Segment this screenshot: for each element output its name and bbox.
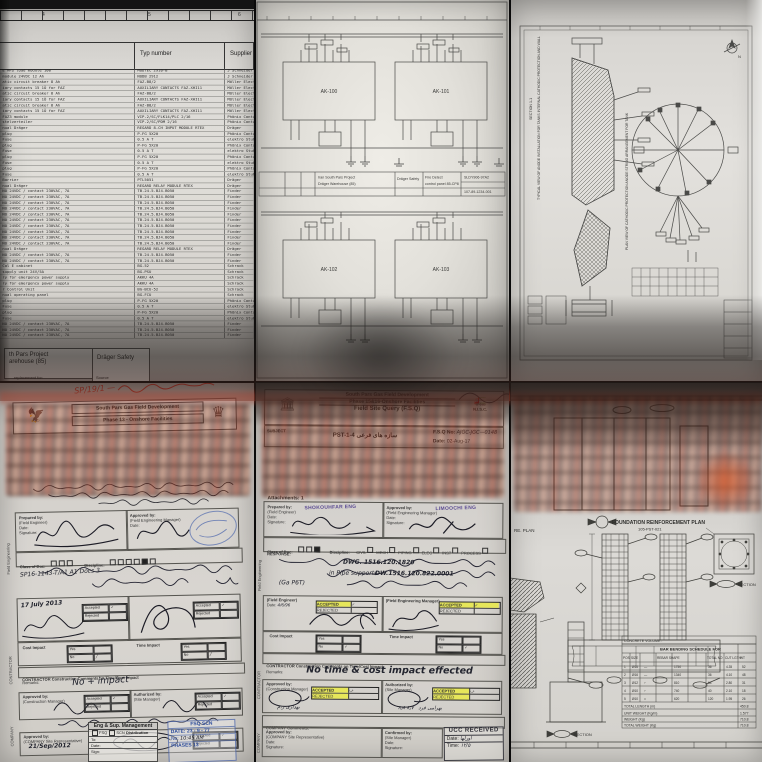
tb-title1: Fire Detect [425,176,443,180]
header-line1: South Pars Gas Field Development [73,403,203,412]
rejected-cell: Rejected [85,703,111,712]
no-cell: No [436,644,462,652]
bbs-h-pos: POS [623,656,630,660]
anode-data-table [632,268,718,296]
part-description: NO 24VDC / contact 230VAC, 7A [0,218,135,223]
part-supplier: Möller Electric [225,85,254,90]
no-tick: ✓ [342,644,360,652]
doc-class-checkbox-checked [314,546,320,552]
drawing-ruler-strip: 4 5 6 [0,10,254,21]
panel-fsq-phase1516-photo: South Pars Gas Field Development Phase 1… [255,382,509,762]
north-arrow-icon [724,40,740,53]
red-handwritten-note: SP/19/1 — [74,383,116,396]
svg-text:⌐: ⌐ [644,689,646,693]
col-header-supplier: Supplier [225,43,254,69]
pedestal-columns [575,534,713,640]
fe-decision-signature [304,604,384,631]
rejected-empty [109,612,127,620]
discipline-option: ELEC [422,550,432,555]
prepared-by-block: Prepared by: (Field Engineer) Date: Sign… [15,510,129,552]
concrete-volume-label: CONCRETE VOLUME : [624,639,662,643]
part-supplier: Finder [225,206,254,211]
svg-text:64: 64 [708,681,712,685]
part-supplier: Phönix Contact [225,131,254,136]
part-description: NO 24VDC / contact 230VAC, 7A [0,258,135,263]
part-description: r Control Unit [0,287,135,292]
part-supplier: J Schneider [225,74,254,79]
part-type-number: VIP-2/SC/FLK14/PLC 2/16 [135,114,225,119]
fsq1516-header: South Pars Gas Field Development Phase 1… [264,389,504,427]
block-label: AK-102 [321,267,338,273]
part-supplier: Finder [225,195,254,200]
part-description: NO 24VDC / contact 230VAC, 7A [0,212,135,217]
parts-table-header: Typ number Supplier [0,42,254,70]
part-type-number: MODTEC 2910-B [135,68,225,73]
part-description: supply unit 24V/5A [0,269,135,274]
side-label-field-engineering: Field Engineering [257,560,262,591]
part-type-number: PTL5051 [135,177,225,182]
side-label-company: COMPANY [9,726,14,746]
part-type-number: AKKU 4A [135,281,225,286]
fsq-checkbox [92,730,98,736]
rejected-cell: Rejected [196,701,222,710]
response-pipe-supports: in Pipe supports [329,570,377,577]
svg-text:48: 48 [742,673,746,677]
parts-table-body: E MPS load module 100 MODTEC 2910-B J Sc… [0,68,254,339]
discipline-option: PROCESS [461,551,481,556]
discipline-checkbox [433,547,439,553]
header-signature-overlay [455,388,509,406]
part-type-number: TB.24.5.BJ4.B050 [135,258,225,263]
yes-empty [343,636,361,644]
manager-signature [133,516,194,545]
cm-farsi-signature: بهداری ر،م [277,704,300,710]
svg-text:810: 810 [674,681,680,685]
date-label: Date: [267,602,277,607]
svg-text:52: 52 [742,665,746,669]
part-description: FAZ3 module [0,114,135,119]
part-type-number: 0.5 A T [135,316,225,321]
label-typical-view: TYPICAL VIEW OF ANODE INSTALLATION FOR T… [537,36,541,200]
bbs-rows: 1Ø16—1750364.3552 2Ø16—1340364.1048 3Ø12… [624,665,746,701]
page-edge-highlight [746,0,762,360]
rejected-empty [469,695,498,700]
bbs-row: 2Ø16—1340364.1048 [624,673,746,677]
tb-drawing-no: SLDY906-97A2 [464,176,489,180]
part-type-number: TB.24.5.BJ4.B050 [135,229,225,234]
remarks-handwriting: No + impact [72,675,129,688]
part-description: E MPS load module 100 [0,68,135,73]
part-type-number: BG-BCU-52 [135,287,225,292]
discipline-option: PIPING [398,550,412,555]
part-type-number: AKKU 4A [135,275,225,280]
part-description: module 24VDC 12 Ah [0,74,135,79]
stamp-time-handwriting: 10:45 AM [180,735,204,742]
discipline-checkbox [413,547,419,553]
bbs-footer-2-val: 710.8 [740,718,749,722]
side-label-contractor: CONTRACTOR [256,671,261,699]
part-description: ry for emergency power supply [0,275,135,280]
part-supplier: Finder [225,333,254,338]
part-description: atic circuit breaker 8 Ah [0,103,135,108]
impact-row: Cost Impact Yes No╱ Time Impact Yes No╱ [17,638,241,667]
received-date-scribble: اورلها [460,736,472,742]
cost-impact-label: Cost Impact [270,633,293,638]
date-value: 02-Aug-17 [447,438,470,444]
signature-label: Signature: [382,745,442,750]
svg-text:2: 2 [624,673,626,677]
time-impact-label: Time Impact [390,634,413,639]
part-supplier: Möller Electric [225,103,254,108]
cathodic-drawing: TYPICAL VIEW OF ANODE INSTALLATION FOR T… [510,0,762,381]
vendor-name: Dräger Safety [97,355,149,362]
part-description: Fuse [0,137,135,142]
part-type-number: FAZ-B8/2 [135,91,225,96]
response-note: (Ga P6T) [279,579,305,586]
no-cell: No [182,651,208,660]
part-description: NO 24VDC / contact 230VAC, 7A [0,235,135,240]
dist-label: Distribution [126,730,148,735]
part-type-number: REGARD 8-CH INPUT MODULE RTEX [135,126,225,131]
prepared-signature [288,510,378,535]
contractor-comments-header: CONTRACTOR Construction Comments on Time… [262,653,505,666]
header-text-block: South Pars Gas Field Development Phase 1… [319,392,455,414]
project-name: th Pars Project [9,352,97,359]
plan-label: RE. PLAN [514,528,535,533]
part-supplier: Schrack [225,292,254,297]
part-type-number: TB.24.5.BJ4.B050 [135,321,225,326]
panel-parts-list-photo: 4 5 6 Typ number Supplier E MPS load mod… [0,0,254,381]
part-description: plug [0,298,135,303]
svg-text:4: 4 [624,689,626,693]
part-description: nual Dräger [0,126,135,131]
svg-text:—: — [644,665,648,669]
accepted-cell-highlighted: ACCEPTED [440,602,474,607]
svg-text:1750: 1750 [674,665,681,669]
yes-cell: Yes [436,636,462,644]
source-label: Source [96,375,109,380]
confirmed-block: Confirmed by: (Site Manager) Date: Signa… [381,728,443,758]
part-supplier: elektro Stuhr [225,172,254,177]
part-type-number: P-FG 5X20 [135,131,225,136]
part-type-number: P-FG 5X20 [135,143,225,148]
part-type-number: TB.24.5.BJ4.B050 [135,241,225,246]
part-type-number: NODB 2912 [135,74,225,79]
cm-accept-table: Accepted✓ Rejected [84,694,130,713]
part-description: NO 24VDC / contact 230VAC, 7A [0,333,135,338]
accepted-tick: ⤻ [348,688,377,693]
time-impact-table: Yes No╱ [180,642,226,661]
header-phase-box: Phase 13 - Onshore Facilities [72,413,204,426]
ground-symbols [346,156,504,166]
cm-accept-table: ACCEPTED⤻ REJECTED [311,687,379,700]
header-title-box: South Pars Gas Field Development [71,401,203,414]
section-label-right: SECTION [738,582,756,587]
doc-class-checkbox [298,546,304,552]
part-supplier: Dräger [225,246,254,251]
rebar-drawing: FOUNDATION REINFORCEMENT PLAN 105-PST-02… [510,382,762,762]
side-label-company: COMPANY [256,733,261,753]
accepted-tick: ✓ [474,603,499,608]
cost-impact-table: Yes No╱ [67,644,113,663]
part-type-number: TB.24.5.BJ4.B050 [135,223,225,228]
response-farsi-handwriting [18,562,239,597]
relay-block-ak102 [283,212,375,334]
svg-text:4.35: 4.35 [726,665,732,669]
part-supplier: Finder [225,258,254,263]
part-supplier: Schrack [225,287,254,292]
subject-value: PST-1-4 سازه های فرعی [305,432,425,440]
panel-rebar-drawing-photo: FOUNDATION REINFORCEMENT PLAN 105-PST-02… [510,382,762,762]
part-type-number: 0.5 A T [135,172,225,177]
right-logo-text: N.I.S.C. [463,407,497,412]
part-description: nual Dräger [0,183,135,188]
bbs-footer-0: TOTAL LENGTH (m) [624,705,655,709]
response-dwg2: DW.1516.120.822.0001 [375,570,454,578]
discipline-checkbox [367,547,373,553]
fem-decision: (Field Engineering Manager) ACCEPTED✓ RE… [382,596,503,633]
side-label-field-engineering: Field Engineering [5,543,11,574]
part-type-number: FAZ-B8/2 [135,80,225,85]
part-supplier: J Schneider [225,68,254,73]
part-supplier: Schrack [225,269,254,274]
received-stamp-text: UCC RECEIVED [445,727,503,735]
remarks-label: Remarks: [22,680,39,685]
bbs-footer-0-val: 450.8 [740,705,749,709]
part-supplier: elektro Stuhr [225,149,254,154]
subject-row: SUBJECT PST-1-4 سازه های فرعی F.S.Q No: … [264,425,504,449]
red-handwriting-scribble [116,382,226,396]
dist-fsq-label: FSQ [99,730,107,735]
discipline-label: Discipline: [330,550,350,555]
part-description: nual Dräger [0,246,135,251]
company-approved-block: Approved by: (COMPANY Site Representativ… [262,727,383,758]
sm-farsi-signature: بهرامی فرد ۸٫۷ ۸٫۸ [398,705,442,711]
part-description: stelverteiler [0,120,135,125]
svg-text:5: 5 [624,697,626,701]
field-engineer-signature [30,515,126,549]
bbs-footer-1-val: 1.577 [740,712,749,716]
part-description: atic circuit breaker 8 Ah [0,80,135,85]
drawing-title: FOUNDATION REINFORCEMENT PLAN [612,520,705,526]
svg-text:□: □ [644,697,646,701]
bbs-row: 4Ø10⌐740402.1018 [624,689,746,693]
part-description: nual operating panel [0,292,135,297]
received-date-label: Date: [447,736,459,742]
doc-class-checkbox [306,546,312,552]
subject-label: SUBJECT [267,428,286,433]
part-supplier: Finder [225,235,254,240]
part-supplier: Finder [225,327,254,332]
svg-text:3: 3 [624,681,626,685]
part-type-number: P-FG 5X20 [135,154,225,159]
panel-cathodic-drawing-photo: TYPICAL VIEW OF ANODE INSTALLATION FOR T… [510,0,762,381]
label-section: SECTION 1-1 [529,98,533,120]
part-supplier: elektro Stuhr [225,160,254,165]
part-type-number: AUXILIARY CONTACTS FAZ-XHI11 [135,108,225,113]
part-supplier: Phönix Contact [225,154,254,159]
part-description: NO 24VDC / contact 230VAC, 7A [0,200,135,205]
part-description: Fuse [0,304,135,309]
svg-text:740: 740 [674,689,680,693]
bbs-row: 1Ø16—1750364.3552 [624,665,746,669]
part-type-number: TB.24.5.BJ4.B050 [135,333,225,338]
bbs-row: 3Ø12⌐810642.8031 [624,681,746,685]
part-description: plug [0,310,135,315]
part-type-number: BG-52 [135,264,225,269]
rejected-cell: Rejected [83,612,109,621]
photo-edge-shadow [0,0,10,381]
fsq13-form: SP/19/1 — South Pars Gas Field Developme… [0,382,254,762]
bbs-row: 5Ø10□6201201.9526 [624,697,746,701]
svg-text:18: 18 [742,689,746,693]
svg-text:2.10: 2.10 [726,689,732,693]
small-column-detail [546,622,606,738]
crown-logo-icon: ♛ [211,403,225,421]
part-type-number: AUXILIARY CONTACTS FAZ-XHI11 [135,85,225,90]
no-tick: ╱ [208,651,226,659]
impact-row: Cost Impact Yes No✓ Time Impact Yes No✓ [262,631,502,655]
tb-project2: Dräger Warehouse (85) [318,182,356,186]
part-type-number: TB.24.5.BJ4.B050 [135,235,225,240]
rejected-cell: Rejected [194,610,220,619]
part-type-number: TB.24.5.BJ4.B050 [135,195,225,200]
north-label: N [738,54,741,59]
part-supplier: Finder [225,200,254,205]
part-type-number: AUXILIARY CONTACTS FAZ-XHI11 [135,97,225,102]
part-supplier: Finder [225,218,254,223]
part-supplier: Schrack [225,275,254,280]
svg-text:36: 36 [708,665,712,669]
header-line3: Field Site Query (F.S.Q) [319,405,455,414]
bbs-h-no: TOTAL NO [707,656,723,660]
svg-text:120: 120 [708,697,714,701]
cm-approval: Approved by: (Construction Manager) ACCE… [262,679,383,714]
part-supplier: Schrack [225,281,254,286]
dist-title: Eng & Sup. Management [89,723,157,730]
svg-text:40: 40 [708,689,712,693]
part-type-number: P-FG 5X20 [135,310,225,315]
dist-scn-label: SCN [116,730,124,735]
part-type-number: REGARD RELAY MODULE RTEX [135,183,225,188]
svg-text:⌐: ⌐ [644,681,646,685]
bbs-footer-3-val: 710.8 [740,724,749,728]
date-label: Date: [433,438,446,444]
part-description: NO 24VDC / contact 230VAC, 7A [0,206,135,211]
svg-text:—: — [644,673,648,677]
relay-block-ak100 [283,34,375,156]
document-photo-collage: 4 5 6 Typ number Supplier E MPS load mod… [0,0,762,762]
replacement-label: replacement for: [14,375,43,380]
discipline-checkbox [482,547,488,553]
part-description: plug [0,131,135,136]
received-stamp: UCC RECEIVED Date: اورلها Time: ۱۲/۵ [444,726,504,761]
block-label: AK-101 [433,89,450,95]
fe-accept-table: Accepted✓ Rejected [82,603,128,622]
rejected-empty [474,609,499,614]
svg-text:2.80: 2.80 [726,681,732,685]
label-plan-view: PLAN VIEW OF CATHODIC PROTECTION ANODE S… [625,112,629,250]
part-description: Fuse [0,149,135,154]
part-supplier: Phönix Contact [225,143,254,148]
rejected-cell: REJECTED [440,608,474,613]
part-type-number: TB.24.5.BJ4.B050 [135,200,225,205]
part-type-number: TB.24.5.BJ4.B050 [135,212,225,217]
drawing-title-no: 105-PST-021 [638,527,662,532]
fsq-no-label: F.S.Q No: [433,429,455,435]
part-type-number: TB.24.5.BJ4.B050 [135,252,225,257]
anode-string-section [566,210,612,316]
no-cell: No [316,644,342,652]
accepted-tick: ⤻ [469,689,498,694]
fsq1516-form: South Pars Gas Field Development Phase 1… [255,382,509,762]
sm-accept-table: ACCEPTED⤻ REJECTED [432,687,500,700]
fsq-no-value: AJGC-JGC—0148 [457,430,498,436]
part-type-number: BG-FCU [135,292,225,297]
auth-approval-block: Authorized by: (Site Manager) Accepted✓ … [129,688,243,718]
project-location: arehouse (85) [9,359,97,366]
photo-dark-edge [0,0,254,9]
panel-schematic-photo: AK-100 AK-101 AK-102 AK-103 Iran South P… [255,0,509,381]
ruler-number: 6 [238,12,241,18]
ruler-number: 5 [148,12,151,18]
header-line2: Phase 13 - Onshore Facilities [73,415,203,424]
side-label-contractor: CONTRACTOR [8,656,14,684]
part-supplier: Möller Electric [225,91,254,96]
fem-accept-table: Accepted✓ Rejected [193,601,239,620]
part-description: Fuse [0,172,135,177]
part-description: NO 24VDC / contact 230VAC, 7A [0,229,135,234]
bbs-footer-2: WEIGHT (Kg) [624,718,645,722]
fem-decision-block: Accepted✓ Rejected [127,594,241,640]
part-type-number: 0.5 A T [135,160,225,165]
stamp-no-label: No: [171,736,179,742]
fem-decision-signature [385,603,445,631]
part-description: NO 24VDC / contact 230VAC, 7A [0,327,135,332]
approved-by-block: Approved by: (Field Engineering Manager)… [126,508,240,550]
part-supplier: Finder [225,321,254,326]
svg-text:1340: 1340 [674,673,681,677]
part-type-number: TB.24.5.BJ4.B050 [135,327,225,332]
col-header-type: Typ number [135,43,225,69]
part-supplier: elektro Stuhr [225,137,254,142]
part-description: Fuse [0,160,135,165]
part-supplier: Finder [225,212,254,217]
cm-approval-block: Approved by: (Construction Manager) Acce… [18,690,132,720]
fsq-scn-stamp: FSQ SCN DATE: 23 - 9 - 77 No: 10:45 AM P… [167,719,236,762]
discipline-checkbox [452,547,458,553]
cost-impact-label: Cost Impact [22,645,45,650]
svg-text:Ø16: Ø16 [632,673,638,677]
relay-block-ak101 [395,34,487,156]
tb-sheet-no: 107-89-1234-001 [464,190,492,194]
client-logo-icon: 🦅 [28,407,46,424]
time-impact-table: Yes No✓ [435,635,481,653]
part-type-number: 0.5 A T [135,137,225,142]
part-description: NO 24VDC / contact 230VAC, 7A [0,252,135,257]
tb-project1: Iran South Pars Project [318,176,355,180]
part-description: iary contacts 15 1Ö for FAZ [0,85,135,90]
scn-checkbox [109,730,115,736]
time-impact-label: Time Impact [136,642,159,647]
block-label: AK-100 [321,89,338,95]
prepared-block: Prepared by: (Field Engineer) Date: Sign… [263,501,384,538]
discipline-options: CIVILMECHPIPINGELECINSTPROCESS [354,541,489,559]
dist-row-sign: Sign: [89,748,157,754]
part-supplier: Phönix Contact [225,298,254,303]
signature-label: Signature: [263,744,382,750]
part-description: NO 24VDC / contact 230VAC, 7A [0,195,135,200]
